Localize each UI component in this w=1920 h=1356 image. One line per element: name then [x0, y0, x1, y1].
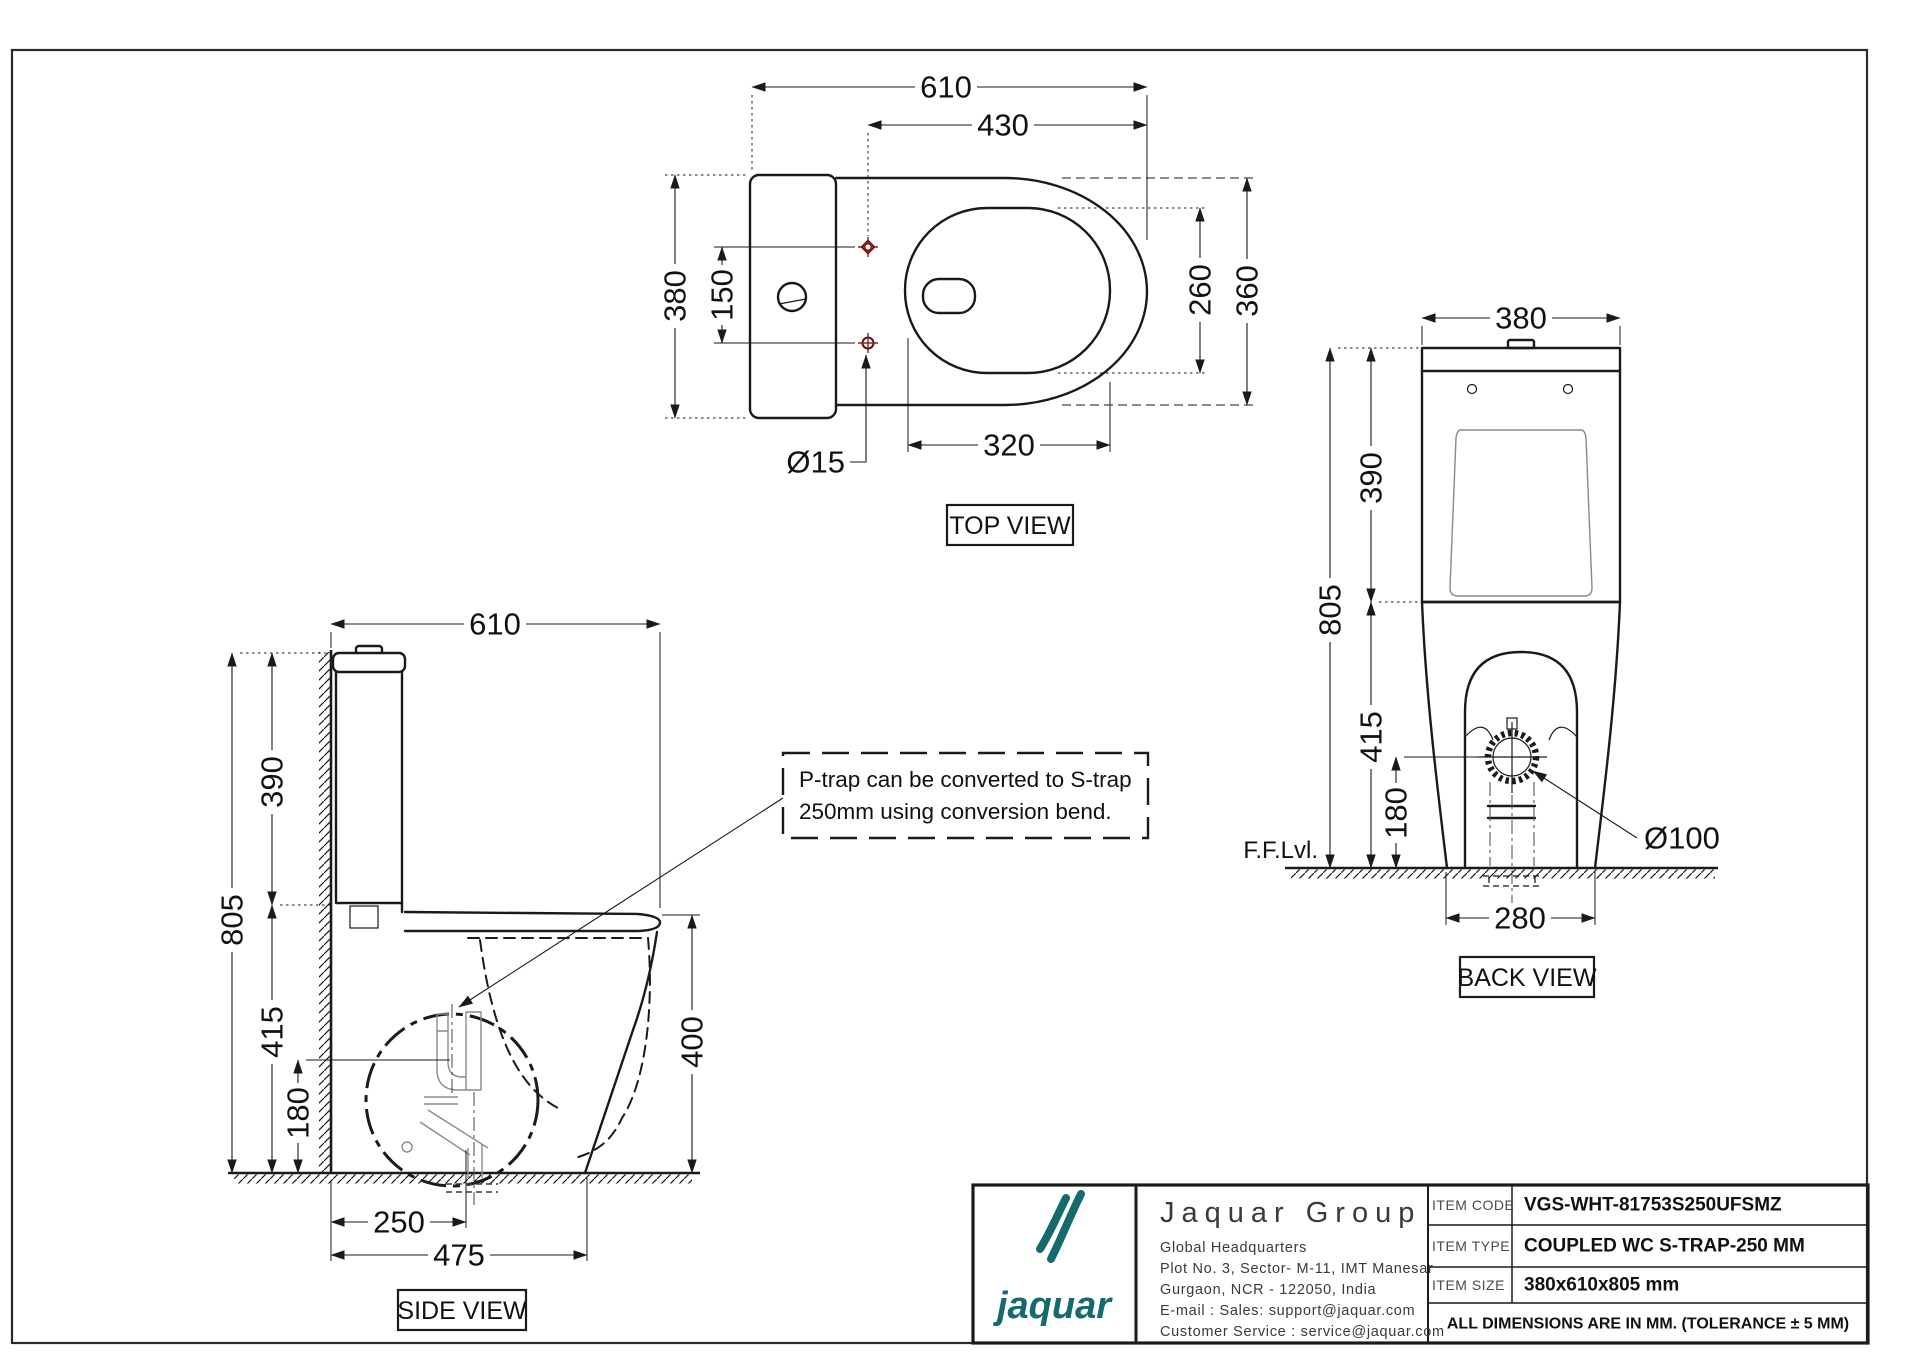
topview-flush-jet — [923, 279, 975, 313]
sideview-label: SIDE VIEW — [397, 1290, 527, 1330]
dim-text: Ø100 — [1644, 821, 1720, 856]
dim-sideview-180: 180 — [281, 1060, 451, 1173]
dim-text: 390 — [255, 756, 290, 808]
view-label: TOP VIEW — [949, 512, 1071, 540]
topview-mounting-hole-top — [858, 237, 878, 257]
dim-text: 610 — [920, 70, 972, 105]
dim-text: 415 — [1354, 711, 1389, 763]
dim-text: 400 — [675, 1016, 710, 1068]
sideview-hinge — [350, 906, 378, 928]
view-label: BACK VIEW — [1458, 964, 1597, 992]
dim-backview-280: 280 — [1446, 872, 1595, 936]
dim-sideview-390: 390 — [255, 653, 331, 905]
dim-sideview-610: 610 — [331, 607, 660, 909]
sideview-seat — [405, 912, 660, 931]
company-email: E-mail : Sales: support@jaquar.com — [1160, 1303, 1415, 1319]
dim-topview-260: 260 — [1058, 208, 1218, 373]
dim-text: 250 — [373, 1205, 425, 1240]
sideview-cistern-body — [336, 672, 402, 903]
company-address2: Gurgaon, NCR - 122050, India — [1160, 1282, 1377, 1298]
tolerance-note: ALL DIMENSIONS ARE IN MM. (TOLERANCE ± 5… — [1447, 1316, 1849, 1333]
dim-text: 430 — [977, 108, 1029, 143]
drawing-sheet: 610 430 380 150 — [0, 0, 1920, 1356]
backview-label: BACK VIEW — [1458, 957, 1597, 997]
note-line1: P-trap can be converted to S-trap — [799, 767, 1132, 792]
sideview-bowl-front — [585, 932, 657, 1173]
dim-text: Ø15 — [786, 445, 845, 480]
sheet-border — [12, 50, 1867, 1343]
dim-backview-380: 380 — [1422, 301, 1620, 346]
dim-sideview-400: 400 — [662, 915, 710, 1173]
top-view: 610 430 380 150 — [658, 70, 1265, 546]
drawing-canvas: 610 430 380 150 — [0, 0, 1920, 1356]
dim-text: 150 — [705, 269, 740, 321]
view-label: SIDE VIEW — [397, 1297, 527, 1325]
dim-text: 475 — [433, 1238, 485, 1273]
dim-backview-180: 180 — [1379, 757, 1487, 868]
dim-topview-430: 430 — [868, 108, 1147, 237]
item-code-label: ITEM CODE — [1432, 1197, 1514, 1213]
backview-body-right — [1595, 602, 1620, 868]
backview-floor-hatch — [1291, 870, 1715, 879]
dim-text: 610 — [469, 607, 521, 642]
topview-seat-opening — [905, 208, 1110, 373]
note-box — [783, 753, 1148, 838]
side-view: P-trap can be converted to S-trap 250mm … — [215, 607, 1149, 1331]
note-line2: 250mm using conversion bend. — [799, 799, 1112, 824]
floor-level-label: F.F.Lvl. — [1243, 837, 1318, 864]
sideview-floor-hatch — [234, 1175, 692, 1184]
company-hq: Global Headquarters — [1160, 1240, 1307, 1256]
conversion-note: P-trap can be converted to S-trap 250mm … — [459, 753, 1148, 1007]
dim-backview-outlet-dia: Ø100 — [1533, 771, 1720, 856]
backview-cistern-outline — [1422, 348, 1620, 602]
item-type-value: COUPLED WC S-TRAP-250 MM — [1524, 1236, 1805, 1257]
dim-text: 415 — [255, 1006, 290, 1058]
item-code-value: VGS-WHT-81753S250UFSMZ — [1524, 1195, 1782, 1216]
backview-flush-button — [1508, 340, 1534, 348]
dim-text: 390 — [1354, 452, 1389, 504]
dim-text: 380 — [1495, 301, 1547, 336]
backview-trap-outlet — [1477, 718, 1547, 793]
dim-text: 280 — [1494, 901, 1546, 936]
company-name: Jaquar Group — [1160, 1197, 1421, 1229]
item-size-value: 380x610x805 mm — [1524, 1275, 1679, 1296]
topview-mounting-hole-bottom — [858, 333, 878, 353]
sideview-wall-hatch — [319, 652, 330, 1172]
sideview-cistern-lid — [333, 653, 405, 672]
backview-body-left — [1422, 602, 1447, 868]
dim-topview-360: 360 — [1062, 178, 1265, 405]
company-address1: Plot No. 3, Sector- M-11, IMT Manesar — [1160, 1261, 1434, 1277]
company-service: Customer Service : service@jaquar.com — [1160, 1324, 1445, 1340]
dim-text: 380 — [658, 270, 693, 322]
topview-bowl-outline — [836, 178, 1147, 405]
dim-text: 360 — [1230, 265, 1265, 317]
dim-text: 180 — [281, 1087, 316, 1139]
dim-text: 260 — [1183, 264, 1218, 316]
back-view: F.F.Lvl. 380 805 390 — [1243, 301, 1720, 998]
dim-text: 180 — [1379, 787, 1414, 839]
jaquar-wordmark: jaquar — [992, 1285, 1113, 1327]
dim-text: 320 — [983, 428, 1035, 463]
title-block: jaquar Jaquar Group Global Headquarters … — [973, 1185, 1868, 1343]
dim-text: 805 — [1313, 584, 1348, 636]
item-size-label: ITEM SIZE — [1432, 1277, 1505, 1293]
dim-text: 805 — [215, 894, 250, 946]
jaquar-logo: jaquar — [992, 1194, 1113, 1327]
topview-label: TOP VIEW — [947, 505, 1073, 545]
sideview-hidden-bowl-front — [575, 938, 650, 1158]
dim-backview-390: 390 — [1354, 348, 1427, 602]
item-type-label: ITEM TYPE — [1432, 1238, 1510, 1254]
topview-cistern-outline — [750, 175, 836, 418]
